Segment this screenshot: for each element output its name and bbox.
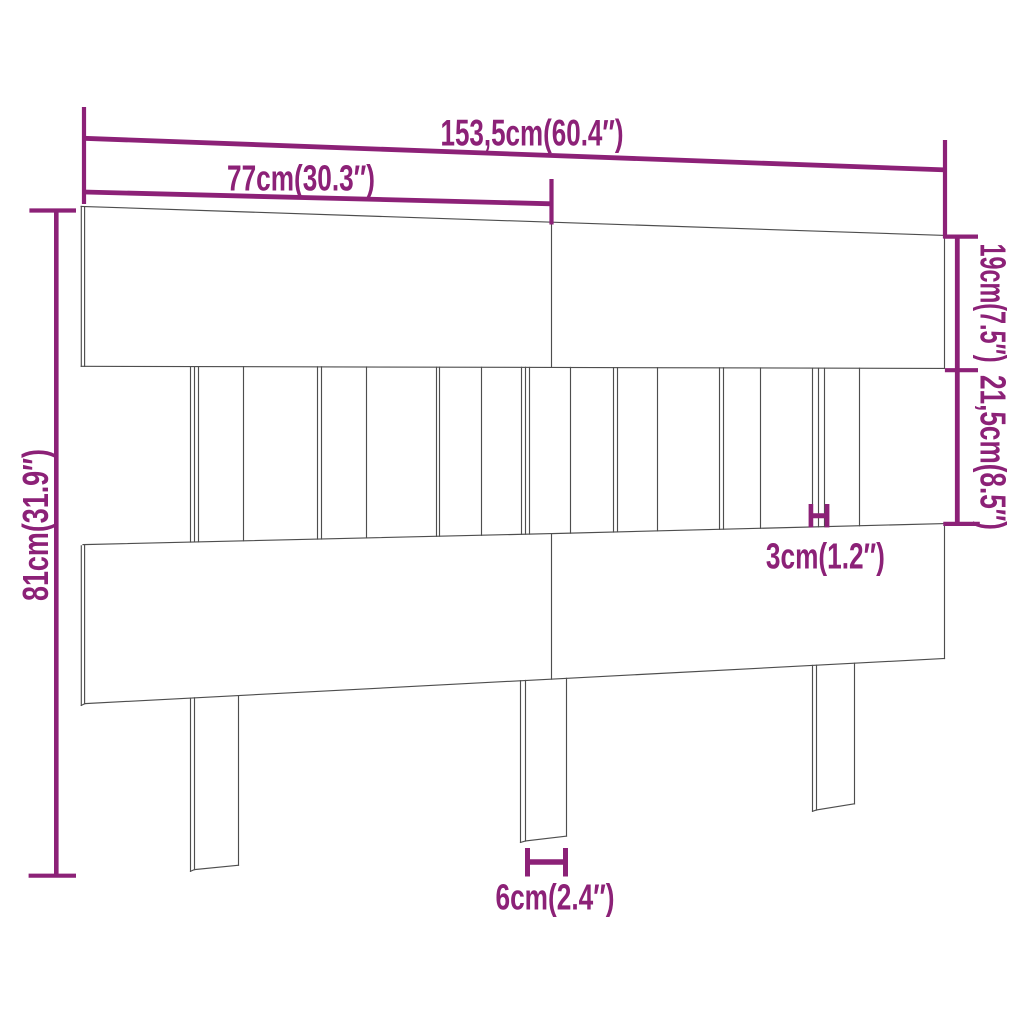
svg-text:19cm(7.5″): 19cm(7.5″) (973, 244, 1014, 363)
svg-text:6cm(2.4″): 6cm(2.4″) (496, 876, 615, 917)
svg-text:21,5cm(8.5″): 21,5cm(8.5″) (973, 375, 1014, 530)
svg-text:81cm(31.9″): 81cm(31.9″) (15, 449, 56, 601)
svg-text:153,5cm(60.4″): 153,5cm(60.4″) (441, 113, 624, 154)
svg-text:3cm(1.2″): 3cm(1.2″) (766, 535, 885, 576)
svg-text:77cm(30.3″): 77cm(30.3″) (227, 158, 375, 199)
